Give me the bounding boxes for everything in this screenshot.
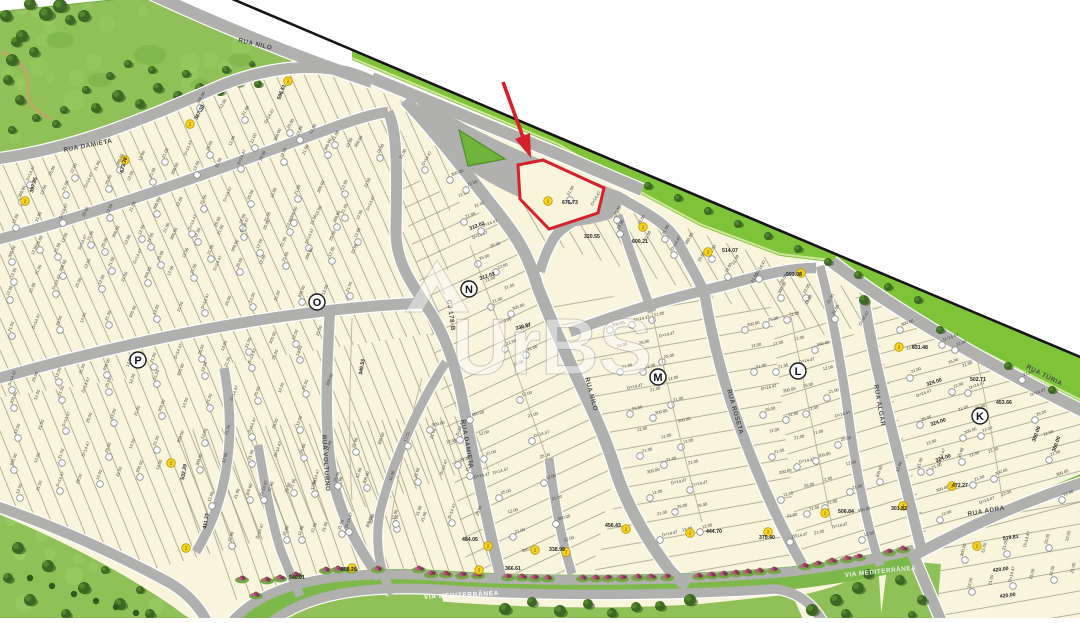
svg-text:456.43: 456.43: [605, 523, 621, 529]
svg-text:375.40: 375.40: [759, 535, 775, 541]
svg-text:675.73: 675.73: [562, 200, 578, 206]
svg-text:M: M: [653, 372, 662, 384]
svg-text:593.08: 593.08: [786, 272, 802, 278]
svg-text:444.70: 444.70: [706, 529, 722, 535]
svg-text:472.27: 472.27: [952, 483, 968, 489]
svg-text:UrBS: UrBS: [452, 302, 652, 391]
svg-text:540.01: 540.01: [289, 575, 305, 581]
svg-text:514.07: 514.07: [722, 248, 738, 254]
svg-text:366.61: 366.61: [505, 566, 521, 572]
svg-text:338.99: 338.99: [549, 547, 565, 553]
svg-text:631.48: 631.48: [912, 345, 928, 351]
svg-text:600.21: 600.21: [632, 239, 648, 245]
svg-text:484.05: 484.05: [462, 537, 478, 543]
svg-text:O: O: [313, 297, 322, 309]
svg-text:506.84: 506.84: [838, 509, 854, 515]
svg-text:320.55: 320.55: [584, 234, 600, 240]
svg-text:358.26: 358.26: [341, 567, 357, 573]
svg-text:453.66: 453.66: [996, 400, 1012, 406]
svg-text:P: P: [134, 355, 141, 367]
svg-text:N: N: [465, 284, 473, 296]
svg-text:502.71: 502.71: [970, 377, 986, 383]
svg-text:K: K: [976, 411, 984, 423]
svg-text:L: L: [795, 366, 802, 378]
svg-text:301.82: 301.82: [891, 506, 907, 512]
